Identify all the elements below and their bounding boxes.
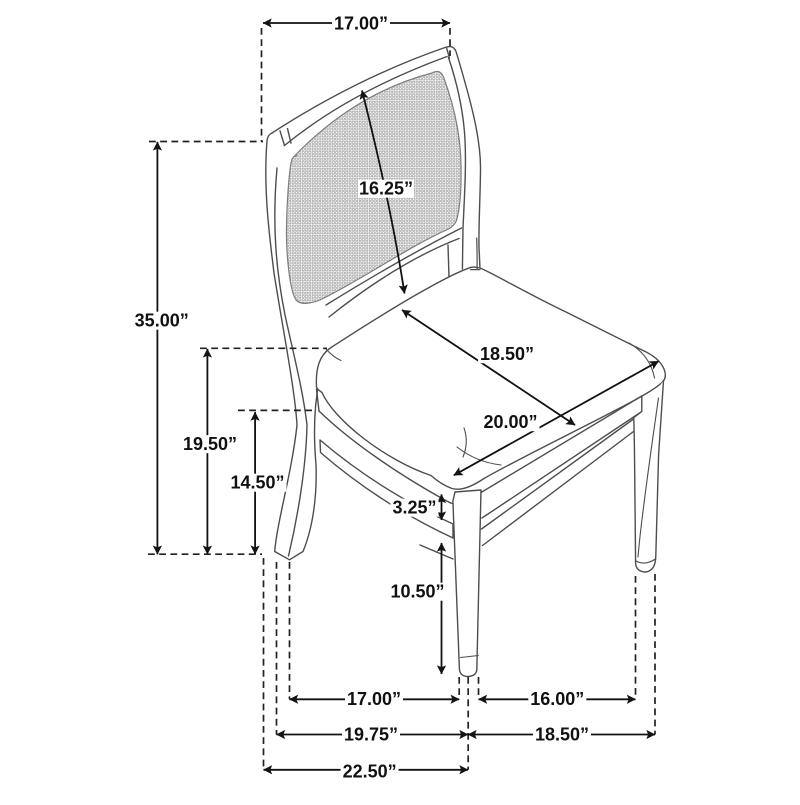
- svg-text:18.50”: 18.50”: [535, 725, 589, 745]
- svg-text:10.50”: 10.50”: [390, 582, 444, 602]
- svg-text:35.00”: 35.00”: [135, 311, 189, 331]
- svg-text:19.75”: 19.75”: [344, 725, 398, 745]
- svg-text:20.00”: 20.00”: [483, 412, 537, 432]
- svg-text:17.00”: 17.00”: [334, 13, 388, 33]
- svg-text:18.50”: 18.50”: [480, 344, 534, 364]
- svg-text:17.00”: 17.00”: [347, 689, 401, 709]
- svg-text:19.50”: 19.50”: [183, 434, 237, 454]
- svg-text:16.00”: 16.00”: [530, 689, 584, 709]
- svg-text:14.50”: 14.50”: [230, 473, 284, 493]
- svg-text:3.25”: 3.25”: [392, 498, 436, 518]
- svg-text:16.25”: 16.25”: [359, 179, 413, 199]
- svg-text:22.50”: 22.50”: [343, 761, 397, 781]
